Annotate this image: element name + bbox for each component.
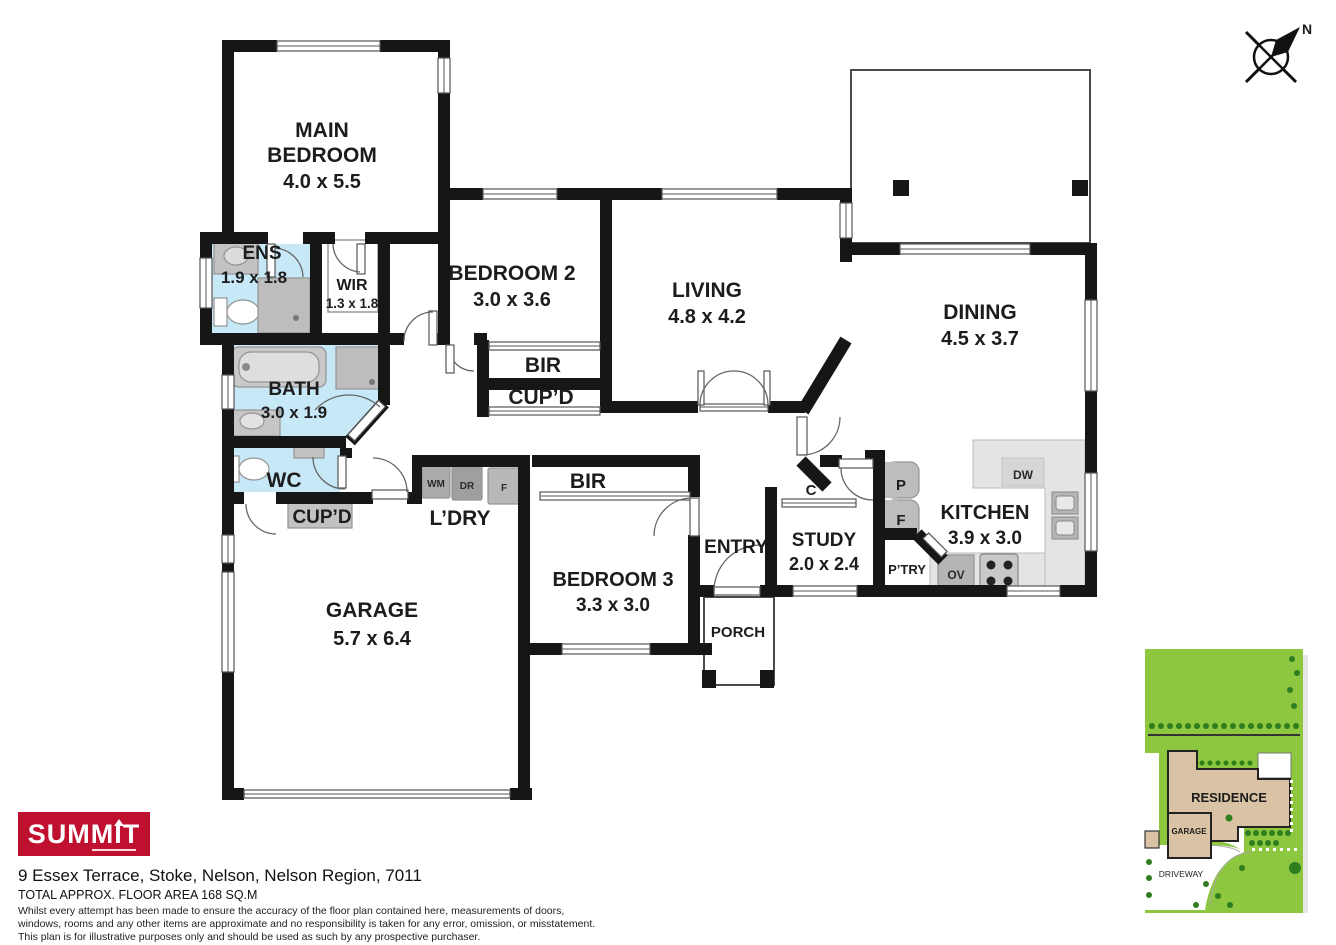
- label-cupd-lower: CUP’D: [292, 507, 351, 528]
- label-ov: OV: [947, 568, 964, 582]
- disclaimer-line-3: This plan is for illustrative purposes o…: [18, 931, 480, 943]
- summit-logo: SUMMIT: [18, 812, 150, 856]
- disclaimer-line-2: windows, rooms and any other items are a…: [18, 918, 595, 930]
- label-f-kitchen: F: [896, 512, 905, 529]
- porch-structure: [702, 597, 774, 688]
- label-dw: DW: [1013, 468, 1034, 482]
- deck-post: [893, 180, 909, 196]
- dims-wir: 1.3 x 1.8: [326, 296, 379, 311]
- dims-bedroom3: 3.3 x 3.0: [576, 595, 650, 616]
- dims-garage: 5.7 x 6.4: [333, 628, 412, 650]
- label-main-bedroom: MAIN: [295, 119, 349, 142]
- summit-peak-icon: [114, 819, 124, 826]
- compass-north-label: N: [1302, 21, 1312, 37]
- site-plan: RESIDENCE GARAGE DRIVEWAY: [1145, 649, 1308, 913]
- logo-tagline-bar: [92, 849, 136, 851]
- floor-area-text: TOTAL APPROX. FLOOR AREA 168 SQ.M: [18, 888, 257, 902]
- label-bath: BATH: [268, 379, 319, 400]
- dims-dining: 4.5 x 3.7: [941, 328, 1019, 350]
- porch-post: [760, 670, 774, 688]
- porch-post: [702, 670, 716, 688]
- label-dr: DR: [460, 481, 475, 492]
- label-main-bedroom-2: BEDROOM: [267, 144, 377, 167]
- label-ens: ENS: [242, 243, 281, 264]
- deck: [851, 70, 1090, 243]
- dims-kitchen: 3.9 x 3.0: [948, 528, 1022, 549]
- dims-main-bedroom: 4.0 x 5.5: [283, 171, 361, 193]
- floorplan-drawing: MAIN BEDROOM 4.0 x 5.5 ENS 1.9 x 1.8 WIR…: [0, 0, 1336, 945]
- label-ldry: L’DRY: [429, 507, 490, 530]
- label-bedroom3: BEDROOM 3: [552, 569, 673, 591]
- label-entry: ENTRY: [704, 537, 768, 558]
- dims-ens: 1.9 x 1.8: [221, 268, 287, 287]
- label-cupd-upper: CUP’D: [508, 386, 573, 409]
- label-dining: DINING: [943, 301, 1017, 324]
- dims-living: 4.8 x 4.2: [668, 306, 746, 328]
- label-living: LIVING: [672, 279, 742, 302]
- property-address: 9 Essex Terrace, Stoke, Nelson, Nelson R…: [18, 866, 422, 886]
- label-garage: GARAGE: [326, 599, 418, 622]
- label-wm: WM: [427, 479, 445, 490]
- label-pantry: P’TRY: [888, 562, 926, 577]
- dims-bath: 3.0 x 1.9: [261, 403, 327, 422]
- site-driveway-label: DRIVEWAY: [1159, 869, 1204, 879]
- label-bedroom2: BEDROOM 2: [448, 262, 575, 285]
- label-kitchen: KITCHEN: [941, 502, 1030, 524]
- deck-post: [1072, 180, 1088, 196]
- dims-study: 2.0 x 2.4: [789, 554, 859, 574]
- label-bir-upper: BIR: [525, 354, 561, 377]
- label-bir-lower: BIR: [570, 470, 606, 493]
- disclaimer-line-1: Whilst every attempt has been made to en…: [18, 905, 564, 917]
- label-porch: PORCH: [711, 624, 765, 641]
- label-f-laundry: F: [501, 483, 507, 494]
- site-residence-label: RESIDENCE: [1191, 790, 1267, 805]
- floorplan-page: MAIN BEDROOM 4.0 x 5.5 ENS 1.9 x 1.8 WIR…: [0, 0, 1336, 945]
- label-p: P: [896, 477, 906, 494]
- site-garage-label: GARAGE: [1171, 827, 1207, 836]
- label-closet-c: C: [806, 482, 817, 499]
- label-wir: WIR: [336, 277, 368, 294]
- dims-bedroom2: 3.0 x 3.6: [473, 289, 551, 311]
- label-wc: WC: [267, 469, 302, 492]
- label-study: STUDY: [792, 530, 857, 551]
- compass-icon: N: [1246, 21, 1312, 82]
